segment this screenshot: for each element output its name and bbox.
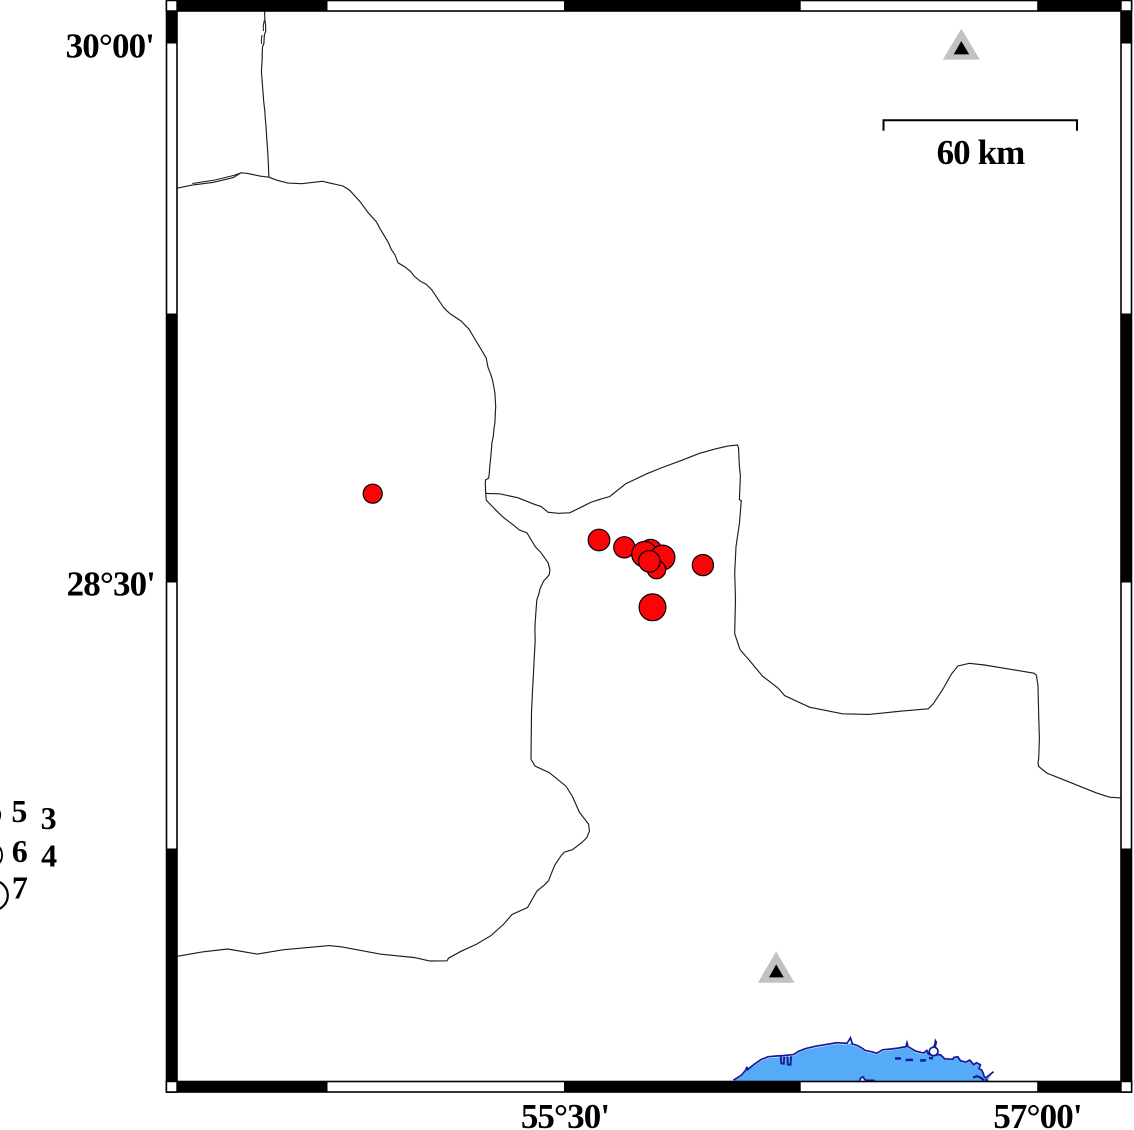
svg-text:28°30': 28°30'	[67, 565, 155, 604]
svg-text:55°30': 55°30'	[521, 1097, 609, 1130]
svg-text:7: 7	[12, 869, 28, 905]
svg-text:57°00': 57°00'	[993, 1097, 1081, 1130]
svg-text:5: 5	[11, 793, 27, 829]
svg-text:60 km: 60 km	[937, 133, 1026, 172]
svg-text:4: 4	[41, 838, 57, 874]
svg-text:6: 6	[12, 833, 28, 869]
svg-text:3: 3	[41, 800, 57, 836]
svg-text:30°00': 30°00'	[66, 26, 154, 65]
